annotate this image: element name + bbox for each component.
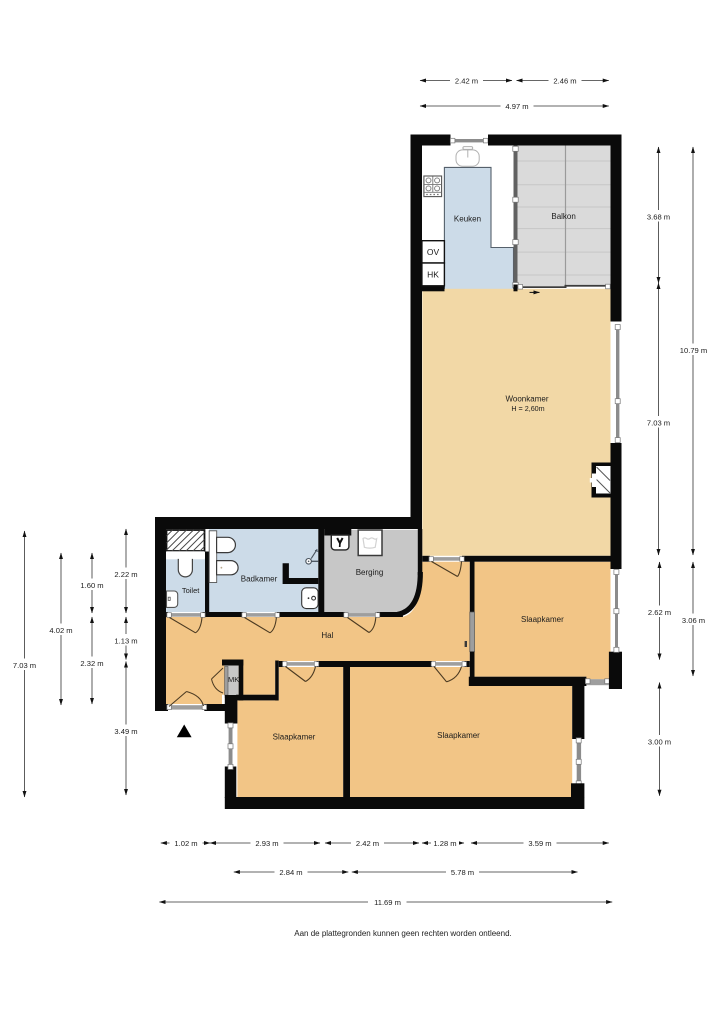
svg-text:HK: HK xyxy=(427,270,439,280)
svg-text:Toilet: Toilet xyxy=(182,586,200,595)
svg-text:Balkon: Balkon xyxy=(551,212,575,221)
svg-text:2.46 m: 2.46 m xyxy=(553,77,576,86)
svg-text:Berging: Berging xyxy=(356,568,384,577)
svg-text:2.42 m: 2.42 m xyxy=(455,77,478,86)
svg-text:4.97 m: 4.97 m xyxy=(505,102,528,111)
svg-text:2.42 m: 2.42 m xyxy=(356,839,379,848)
svg-text:3.49 m: 3.49 m xyxy=(114,727,137,736)
svg-text:OV: OV xyxy=(427,247,440,257)
svg-text:Badkamer: Badkamer xyxy=(241,575,278,584)
svg-text:3.06 m: 3.06 m xyxy=(682,616,705,625)
svg-text:4.02 m: 4.02 m xyxy=(49,626,72,635)
svg-text:7.03 m: 7.03 m xyxy=(13,661,36,670)
svg-text:1.60 m: 1.60 m xyxy=(80,581,103,590)
svg-text:Slaapkamer: Slaapkamer xyxy=(273,733,316,742)
svg-text:Woonkamer: Woonkamer xyxy=(506,395,549,404)
svg-text:Slaapkamer: Slaapkamer xyxy=(521,615,564,624)
svg-text:Keuken: Keuken xyxy=(454,214,481,223)
svg-text:Slaapkamer: Slaapkamer xyxy=(437,731,480,740)
svg-text:2.93 m: 2.93 m xyxy=(255,839,278,848)
svg-text:10.79 m: 10.79 m xyxy=(680,346,707,355)
svg-text:2.22 m: 2.22 m xyxy=(114,570,137,579)
svg-text:3.59 m: 3.59 m xyxy=(528,839,551,848)
svg-text:7.03 m: 7.03 m xyxy=(647,419,670,428)
svg-text:1.02 m: 1.02 m xyxy=(174,839,197,848)
svg-text:5.78 m: 5.78 m xyxy=(451,868,474,877)
svg-text:3.00 m: 3.00 m xyxy=(648,738,671,747)
svg-text:11.69 m: 11.69 m xyxy=(374,898,401,907)
svg-text:1.13 m: 1.13 m xyxy=(114,637,137,646)
svg-text:2.84 m: 2.84 m xyxy=(279,868,302,877)
svg-text:MK: MK xyxy=(228,675,239,684)
svg-text:H = 2,60m: H = 2,60m xyxy=(511,404,544,413)
svg-text:1.28 m: 1.28 m xyxy=(433,839,456,848)
svg-text:2.32 m: 2.32 m xyxy=(80,659,103,668)
svg-text:2.62 m: 2.62 m xyxy=(648,608,671,617)
svg-text:3.68 m: 3.68 m xyxy=(647,213,670,222)
svg-text:Aan de plattegronden kunnen ge: Aan de plattegronden kunnen geen rechten… xyxy=(294,929,512,938)
svg-text:Hal: Hal xyxy=(321,631,333,640)
